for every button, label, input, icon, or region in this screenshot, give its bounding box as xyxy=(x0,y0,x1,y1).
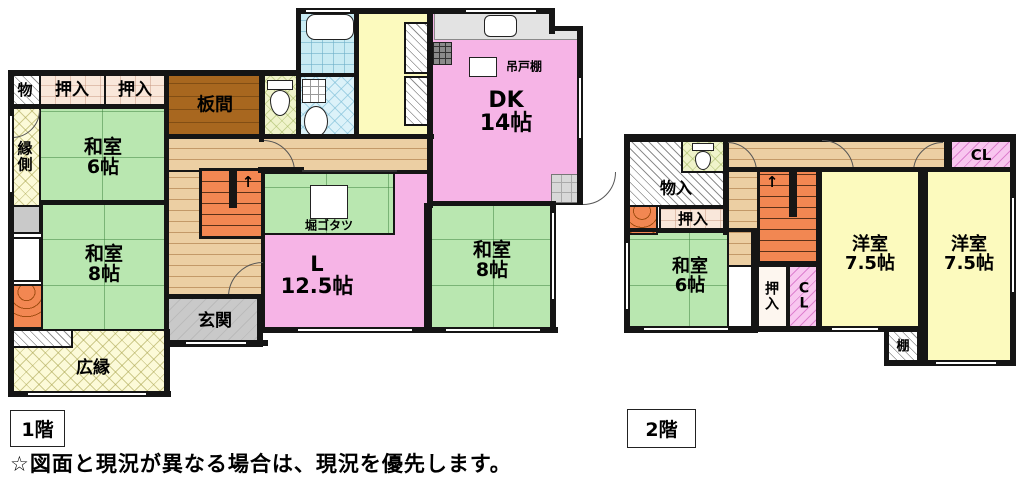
wall xyxy=(424,203,431,333)
wall xyxy=(164,134,434,139)
wall xyxy=(164,70,169,346)
kitchen-sink xyxy=(484,15,517,37)
room-label: 板間 xyxy=(197,97,233,116)
window xyxy=(466,8,536,14)
room-label: 押入 xyxy=(678,212,708,228)
room-label: 棚 xyxy=(896,340,909,354)
window xyxy=(306,8,350,14)
entrance-door xyxy=(186,340,246,346)
window xyxy=(8,116,14,192)
window xyxy=(446,327,540,333)
bathtub-icon xyxy=(306,14,354,40)
room-label: C L xyxy=(799,281,809,310)
wall xyxy=(757,261,820,265)
wall xyxy=(624,228,757,232)
room-label: 和室 8帖 xyxy=(85,245,123,285)
washroom-sink-icon xyxy=(304,106,328,137)
wall xyxy=(259,70,264,142)
stairs-divider xyxy=(789,167,797,217)
genkan-step-line xyxy=(166,294,264,297)
room-label: 玄関 xyxy=(198,313,232,331)
room-label: DK 14帖 xyxy=(480,89,533,135)
tsuridodana-box xyxy=(469,57,497,77)
tokonoma-orange-fixture xyxy=(10,284,43,329)
room-label: 縁 側 xyxy=(17,141,32,173)
washing-machine-icon xyxy=(302,79,326,103)
room-label: 洋室 7.5帖 xyxy=(944,236,994,274)
wall xyxy=(884,326,888,366)
toilet-tank-2f-icon xyxy=(692,143,714,151)
wall xyxy=(39,200,168,204)
window xyxy=(298,327,412,333)
floor2-label: 2階 xyxy=(645,415,677,442)
stairs-divider xyxy=(229,168,237,208)
stove-icon xyxy=(433,42,452,65)
window xyxy=(550,213,556,299)
room-label: 物 xyxy=(17,83,32,99)
tokonoma-gray-fixture xyxy=(10,205,41,234)
floor1-label: 1階 xyxy=(21,415,53,442)
toilet-tank-1f-icon xyxy=(267,80,293,90)
floorplan-canvas: 物 押入 押入 板間 縁 側 和室 6帖 DK 14帖 吊戸棚 堀ゴタツ L 1… xyxy=(0,0,1024,487)
window xyxy=(936,360,996,366)
room-label: 和室 8帖 xyxy=(473,241,511,281)
window xyxy=(577,78,583,138)
room-label: 吊戸棚 xyxy=(506,61,542,74)
floor1-label-box: 1階 xyxy=(10,410,65,447)
room-label: 堀ゴタツ xyxy=(305,220,353,233)
room-label: 物入 xyxy=(660,181,692,198)
wall xyxy=(258,167,304,173)
wall xyxy=(257,297,263,346)
wall xyxy=(751,228,758,333)
tokonoma-white-fixture xyxy=(10,237,41,282)
room-label: 押入 xyxy=(55,82,89,100)
room-label: CL xyxy=(971,148,992,164)
window xyxy=(644,326,728,332)
wall xyxy=(297,73,359,76)
disclaimer-caption: ☆図面と現況が異なる場合は、現況を優先します。 xyxy=(10,448,512,478)
room-label: 押入 xyxy=(118,82,152,100)
room-label: 和室 6帖 xyxy=(84,138,122,178)
wall xyxy=(428,201,556,206)
stairs-up-arrow: ↑ xyxy=(766,175,779,191)
wall xyxy=(946,137,950,172)
wall xyxy=(624,134,1016,140)
room-label: 広縁 xyxy=(76,360,110,378)
hiroen-hatch-strip xyxy=(10,329,73,348)
wall xyxy=(8,104,168,108)
window xyxy=(1010,198,1016,292)
window xyxy=(624,243,630,309)
wall xyxy=(723,137,728,235)
window xyxy=(28,391,146,397)
floor2-label-box: 2階 xyxy=(627,409,696,448)
window xyxy=(832,326,878,332)
wall xyxy=(302,170,397,172)
wall xyxy=(354,8,359,139)
wall xyxy=(8,70,301,76)
room-label: 洋室 7.5帖 xyxy=(845,236,895,274)
room-label: 押 入 xyxy=(765,282,779,311)
wall xyxy=(427,8,433,208)
room-label: 和室 6帖 xyxy=(672,258,708,296)
wall xyxy=(816,167,822,330)
wall xyxy=(727,167,1016,172)
kitchen-door-step xyxy=(551,174,580,203)
stairs-up-arrow: ↑ xyxy=(242,175,255,191)
room-label: L 12.5帖 xyxy=(281,253,354,297)
horigotatsu-table xyxy=(310,185,348,219)
wall xyxy=(164,344,170,397)
wall xyxy=(918,167,927,366)
dk-notch-exterior xyxy=(555,8,583,26)
